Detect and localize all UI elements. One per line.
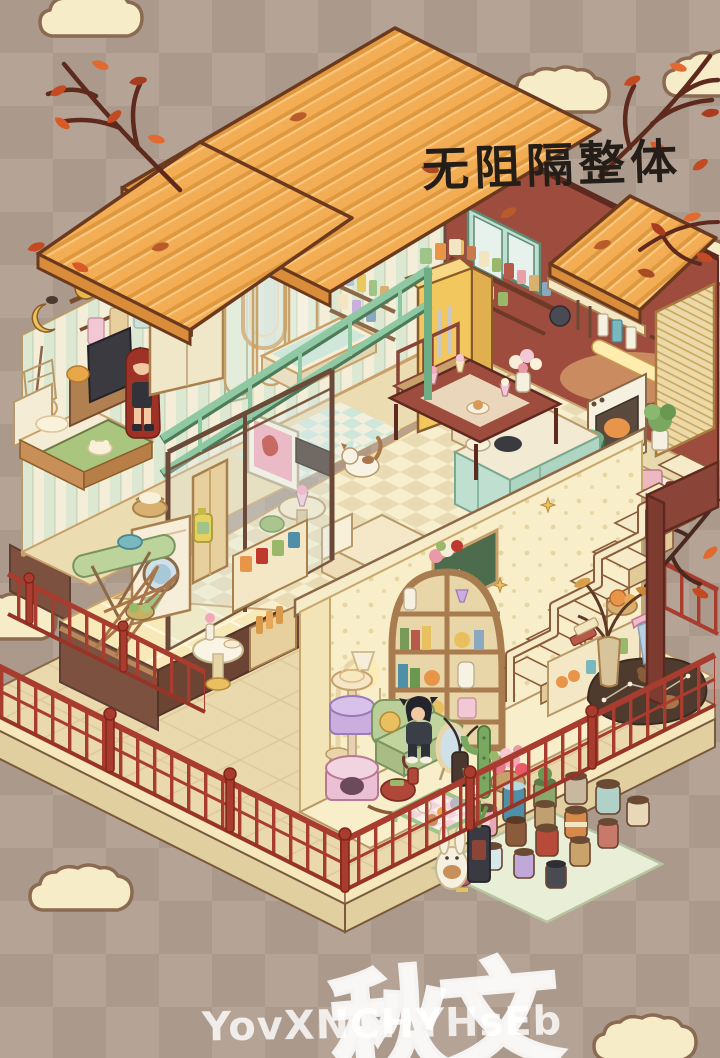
game-screenshot: 无阻隔整体 秋文 YovXNCHYHsEb: [0, 0, 720, 1058]
handwritten-annotation: 无阻隔整体: [421, 121, 720, 200]
watermark-text: YovXNCHYHsEb: [202, 995, 720, 1050]
